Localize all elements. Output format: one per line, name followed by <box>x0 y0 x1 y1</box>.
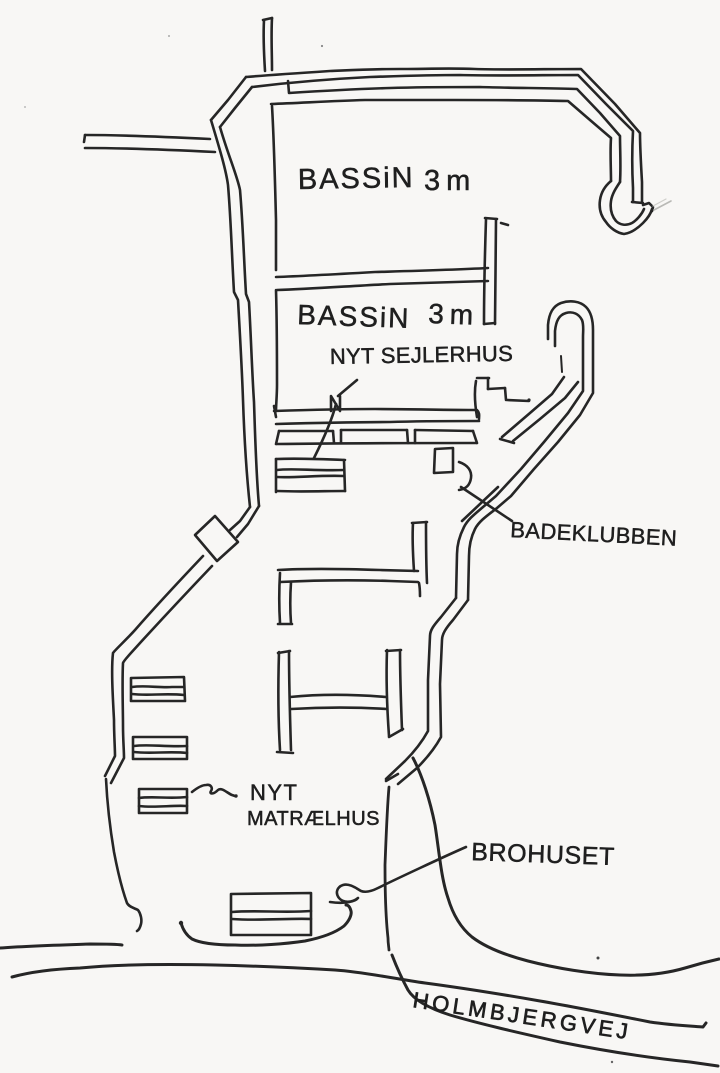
svg-text:3m: 3m <box>424 165 476 197</box>
svg-text:BASSiN: BASSiN <box>298 162 415 196</box>
svg-text:NYT: NYT <box>250 780 299 805</box>
svg-text:BASSiN: BASSiN <box>297 299 411 334</box>
svg-text:BROHUSET: BROHUSET <box>471 838 616 871</box>
svg-text:NYT SEJLERHUS: NYT SEJLERHUS <box>330 341 514 369</box>
svg-text:MATRÆLHUS: MATRÆLHUS <box>247 808 380 830</box>
svg-text:3m: 3m <box>428 298 480 331</box>
